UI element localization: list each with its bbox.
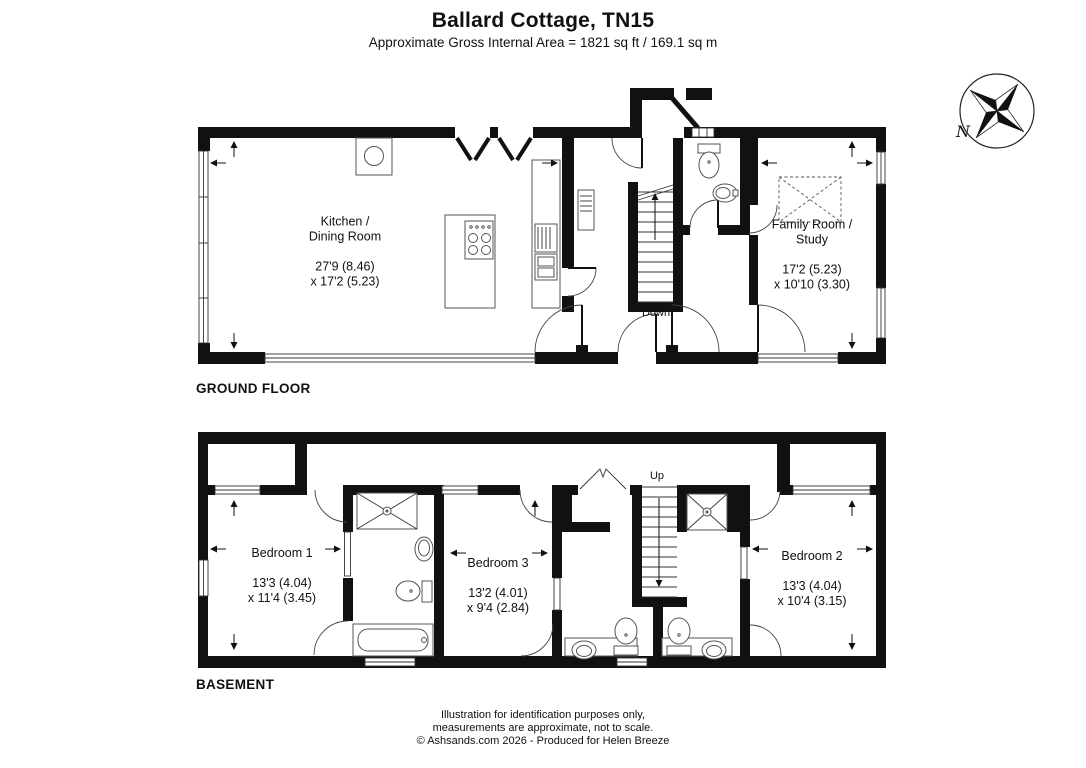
room-dims: 13'3 (4.04) x 10'4 (3.15)	[777, 579, 846, 609]
room-label-family-study: Family Room / Study 17'2 (5.23) x 10'10 …	[772, 203, 853, 308]
page-title: Ballard Cottage, TN15	[0, 9, 1086, 33]
room-label-bedroom-2: Bedroom 2 13'3 (4.04) x 10'4 (3.15)	[777, 534, 846, 624]
footer-line-2: measurements are approximate, not to sca…	[0, 722, 1086, 735]
basin-icon	[415, 537, 433, 561]
basin-icon-2	[572, 641, 596, 659]
compass-icon	[949, 63, 1044, 158]
shower-icon-2	[687, 494, 727, 530]
shower-icon	[357, 493, 417, 529]
room-dims: 13'2 (4.01) x 9'4 (2.84)	[467, 586, 529, 616]
room-label-kitchen-dining: Kitchen / Dining Room 27'9 (8.46) x 17'2…	[309, 200, 381, 305]
basement-fixtures	[353, 493, 732, 659]
room-name: Bedroom 1	[248, 546, 316, 561]
bathtub-icon	[353, 624, 433, 656]
ground-floor-label: GROUND FLOOR	[196, 381, 311, 396]
stairs-up	[642, 487, 677, 597]
footer-line-3: © Ashsands.com 2026 - Produced for Helen…	[0, 735, 1086, 748]
stairs-down-label: Down	[642, 307, 670, 319]
stairs-up-label: Up	[650, 470, 664, 482]
room-label-bedroom-3: Bedroom 3 13'2 (4.01) x 9'4 (2.84)	[467, 541, 529, 631]
compass-north-label: N	[956, 122, 970, 141]
room-name: Bedroom 3	[467, 556, 529, 571]
wc-basin-icon	[713, 184, 738, 202]
room-dims: 13'3 (4.04) x 11'4 (3.45)	[248, 576, 316, 606]
stove-fixture	[356, 138, 392, 175]
toilet-icon-2	[614, 618, 638, 655]
footer-line-1: Illustration for identification purposes…	[0, 709, 1086, 722]
toilet-icon-3	[667, 618, 691, 655]
basin-icon-3	[702, 641, 726, 659]
bifold-doors	[580, 469, 626, 489]
basement-label: BASEMENT	[196, 677, 274, 692]
wc-toilet-icon	[698, 144, 720, 178]
room-name: Bedroom 2	[777, 549, 846, 564]
kitchen-island	[445, 215, 495, 308]
stairs-down	[638, 185, 673, 302]
room-dims: 17'2 (5.23) x 10'10 (3.30)	[772, 263, 853, 293]
page-subtitle: Approximate Gross Internal Area = 1821 s…	[0, 35, 1086, 50]
room-name: Kitchen / Dining Room	[309, 215, 381, 245]
toilet-icon	[396, 581, 432, 602]
room-dims: 27'9 (8.46) x 17'2 (5.23)	[309, 260, 381, 290]
floorplan-drawing	[0, 0, 1086, 768]
ground-doors	[535, 138, 805, 352]
floorplan-page: Ballard Cottage, TN15 Approximate Gross …	[0, 0, 1086, 768]
room-label-bedroom-1: Bedroom 1 13'3 (4.04) x 11'4 (3.45)	[248, 531, 316, 621]
room-name: Family Room / Study	[772, 218, 853, 248]
